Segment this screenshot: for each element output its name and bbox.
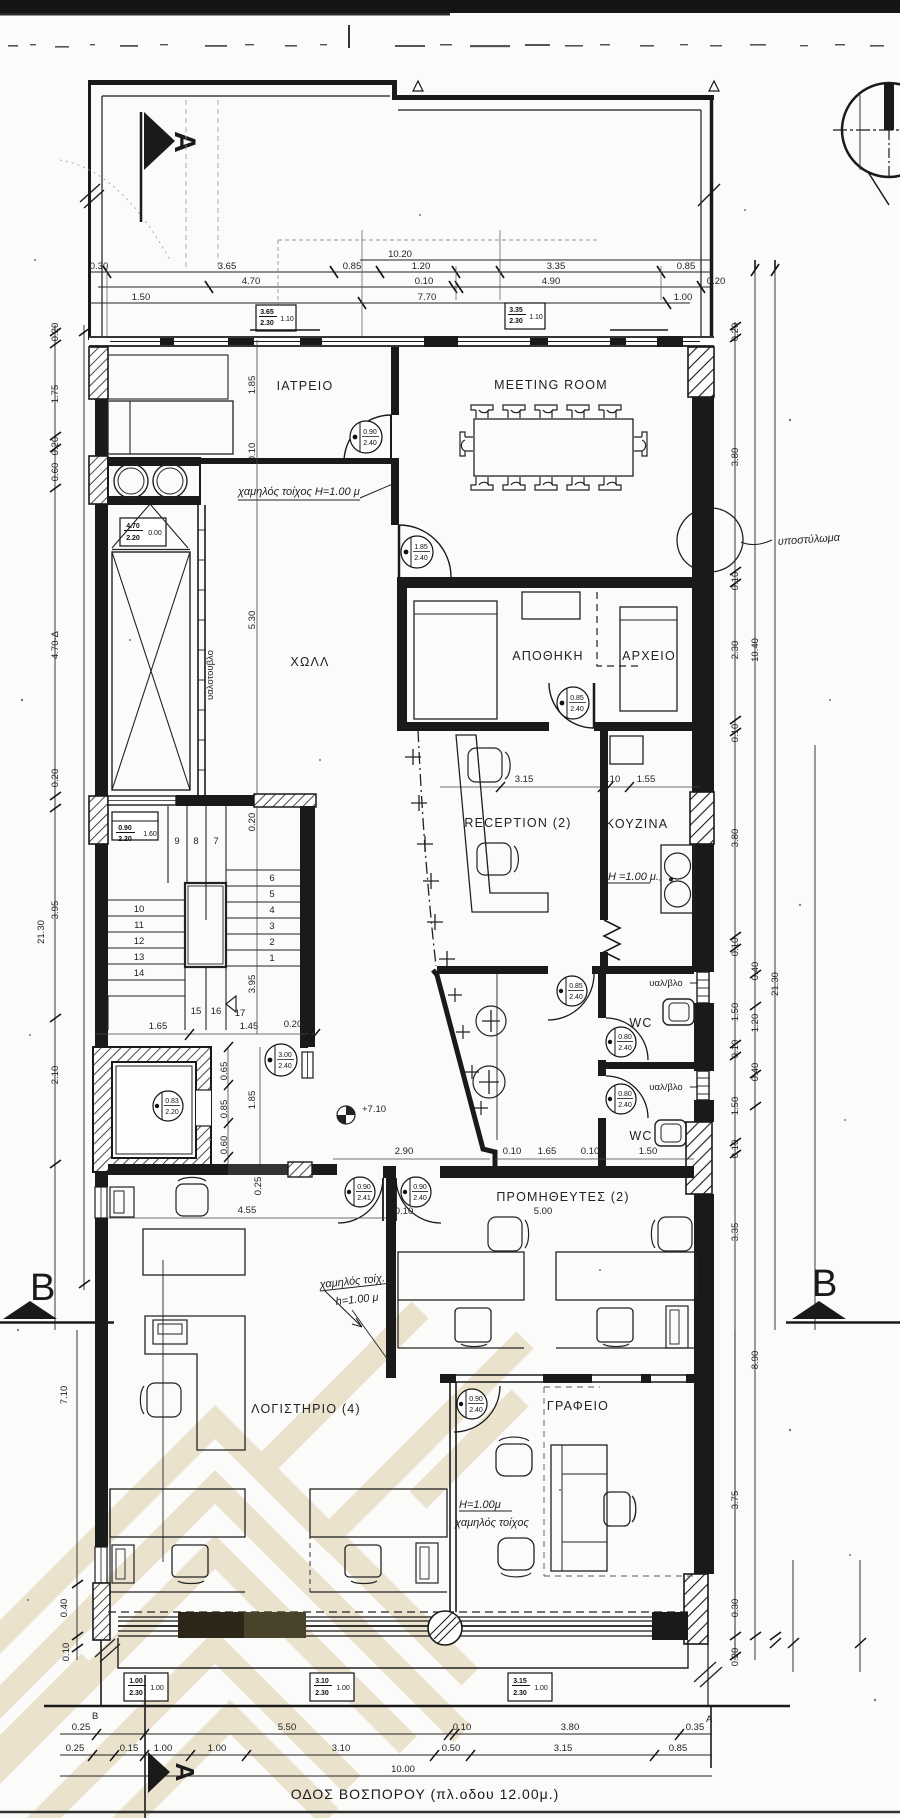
svg-text:ΚΟΥΖΙΝΑ: ΚΟΥΖΙΝΑ xyxy=(606,817,668,831)
svg-text:1.20: 1.20 xyxy=(412,261,431,272)
svg-text:4.90: 4.90 xyxy=(542,276,561,287)
svg-text:0.90: 0.90 xyxy=(413,1184,427,1191)
svg-text:1.65: 1.65 xyxy=(149,1021,168,1032)
svg-text:4.70-Δ: 4.70-Δ xyxy=(50,630,61,659)
svg-text:7.70: 7.70 xyxy=(418,292,437,303)
svg-text:B: B xyxy=(812,1263,837,1305)
svg-text:3.35: 3.35 xyxy=(547,261,566,272)
svg-text:ΑΡΧΕΙΟ: ΑΡΧΕΙΟ xyxy=(622,649,676,663)
svg-text:H=1.00μ: H=1.00μ xyxy=(459,1499,501,1511)
svg-text:1.50: 1.50 xyxy=(730,1003,741,1022)
svg-text:0.40: 0.40 xyxy=(59,1599,70,1618)
svg-text:3.10: 3.10 xyxy=(332,1743,351,1754)
svg-text:8.90: 8.90 xyxy=(750,1351,761,1370)
svg-text:1.00: 1.00 xyxy=(674,292,693,303)
svg-text:1.00: 1.00 xyxy=(534,1685,548,1692)
svg-text:0.10: 0.10 xyxy=(453,1722,472,1733)
svg-text:1.75: 1.75 xyxy=(50,385,61,404)
svg-text:0.20: 0.20 xyxy=(50,323,61,342)
svg-text:7: 7 xyxy=(213,836,218,847)
svg-text:1.85: 1.85 xyxy=(247,1091,258,1110)
svg-text:2.20: 2.20 xyxy=(118,836,132,843)
svg-text:2.20: 2.20 xyxy=(126,535,140,542)
svg-text:10.20: 10.20 xyxy=(388,249,412,260)
svg-text:2.40: 2.40 xyxy=(414,555,428,562)
svg-text:0.60: 0.60 xyxy=(50,463,61,482)
svg-text:1.10: 1.10 xyxy=(529,314,543,321)
svg-text:0.20: 0.20 xyxy=(50,437,61,456)
svg-text:2.40: 2.40 xyxy=(618,1045,632,1052)
svg-text:0.10: 0.10 xyxy=(581,1146,600,1157)
svg-text:0.10: 0.10 xyxy=(730,1040,741,1059)
svg-text:1.00: 1.00 xyxy=(154,1743,173,1754)
svg-text:16: 16 xyxy=(211,1006,222,1017)
svg-text:0.85: 0.85 xyxy=(677,261,696,272)
svg-text:0.85: 0.85 xyxy=(669,1743,688,1754)
svg-text:0.90: 0.90 xyxy=(469,1396,483,1403)
svg-text:0.30: 0.30 xyxy=(730,1599,741,1618)
svg-text:0.90: 0.90 xyxy=(357,1184,371,1191)
svg-text:0.15: 0.15 xyxy=(120,1743,139,1754)
svg-text:5.50: 5.50 xyxy=(278,1722,297,1733)
svg-text:3.35: 3.35 xyxy=(730,1223,741,1242)
svg-text:0.20: 0.20 xyxy=(284,1019,303,1030)
svg-text:5: 5 xyxy=(269,889,274,900)
svg-text:0.20: 0.20 xyxy=(730,323,741,342)
svg-text:0.85: 0.85 xyxy=(343,261,362,272)
svg-text:5.30: 5.30 xyxy=(247,611,258,630)
svg-text:2.40: 2.40 xyxy=(413,1195,427,1202)
svg-text:12: 12 xyxy=(134,936,145,947)
svg-text:A: A xyxy=(168,131,201,153)
svg-text:+7.10: +7.10 xyxy=(362,1104,386,1115)
svg-text:2.30: 2.30 xyxy=(315,1690,329,1697)
svg-text:2.40: 2.40 xyxy=(278,1063,292,1070)
svg-text:0.80: 0.80 xyxy=(618,1034,632,1041)
svg-text:21.30: 21.30 xyxy=(36,920,47,944)
svg-text:3.15: 3.15 xyxy=(513,1678,527,1685)
svg-text:0.10: 0.10 xyxy=(247,443,258,462)
svg-text:MEETING ROOM: MEETING ROOM xyxy=(494,378,608,392)
svg-text:0.20: 0.20 xyxy=(247,813,258,832)
svg-text:1.50: 1.50 xyxy=(730,1097,741,1116)
svg-text:υαλοτουβλο: υαλοτουβλο xyxy=(205,650,216,700)
svg-text:3.65: 3.65 xyxy=(260,309,274,316)
svg-text:3.95: 3.95 xyxy=(247,975,258,994)
svg-text:3.95: 3.95 xyxy=(50,901,61,920)
svg-text:2.40: 2.40 xyxy=(363,440,377,447)
svg-text:2.30: 2.30 xyxy=(509,318,523,325)
svg-text:ΙΑΤΡΕΙΟ: ΙΑΤΡΕΙΟ xyxy=(277,379,334,393)
svg-text:2.40: 2.40 xyxy=(569,994,583,1001)
svg-text:3: 3 xyxy=(269,921,274,932)
svg-text:1.55: 1.55 xyxy=(637,774,656,785)
svg-text:11: 11 xyxy=(134,920,144,931)
svg-text:3.10: 3.10 xyxy=(315,1678,329,1685)
svg-text:5.00: 5.00 xyxy=(534,1206,553,1217)
svg-text:2.10: 2.10 xyxy=(50,1066,61,1085)
svg-text:0.35: 0.35 xyxy=(686,1722,705,1733)
svg-text:0.80: 0.80 xyxy=(618,1091,632,1098)
svg-text:0.83: 0.83 xyxy=(165,1098,179,1105)
svg-text:21.30: 21.30 xyxy=(770,972,781,996)
svg-text:0.60: 0.60 xyxy=(219,1136,230,1155)
svg-text:0.00: 0.00 xyxy=(148,530,162,537)
svg-text:3.15: 3.15 xyxy=(515,774,534,785)
svg-text:ΛΟΓΙΣΤΗΡΙΟ (4): ΛΟΓΙΣΤΗΡΙΟ (4) xyxy=(251,1402,361,1416)
svg-text:1.10: 1.10 xyxy=(280,316,294,323)
svg-text:0.90: 0.90 xyxy=(363,429,377,436)
svg-text:6: 6 xyxy=(269,873,274,884)
svg-text:1.45: 1.45 xyxy=(240,1021,259,1032)
svg-text:0.20: 0.20 xyxy=(50,769,61,788)
svg-text:3.00: 3.00 xyxy=(278,1052,292,1059)
svg-text:0.25: 0.25 xyxy=(66,1743,85,1754)
svg-text:1.60: 1.60 xyxy=(143,831,157,838)
svg-text:A: A xyxy=(170,1763,200,1782)
svg-text:υαλ/βλο: υαλ/βλο xyxy=(649,1082,682,1093)
svg-text:0.25: 0.25 xyxy=(253,1177,264,1196)
svg-text:0.10: 0.10 xyxy=(730,938,741,957)
svg-text:ΓΡΑΦΕΙΟ: ΓΡΑΦΕΙΟ xyxy=(547,1399,609,1413)
svg-text:1: 1 xyxy=(269,953,274,964)
svg-text:0.65: 0.65 xyxy=(219,1062,230,1081)
svg-text:χαμηλός τοίχος: χαμηλός τοίχος xyxy=(454,1517,529,1529)
svg-text:1.00: 1.00 xyxy=(208,1743,227,1754)
svg-text:1.65: 1.65 xyxy=(538,1146,557,1157)
svg-text:0.20: 0.20 xyxy=(707,276,726,287)
svg-text:2.20: 2.20 xyxy=(165,1109,179,1116)
svg-text:Η =1.00 μ.: Η =1.00 μ. xyxy=(608,871,659,883)
svg-text:0.10: 0.10 xyxy=(61,1643,72,1662)
svg-text:2.30: 2.30 xyxy=(129,1690,143,1697)
svg-text:0.85: 0.85 xyxy=(219,1100,230,1119)
svg-text:0.50: 0.50 xyxy=(442,1743,461,1754)
svg-text:A: A xyxy=(706,1714,713,1725)
svg-text:WC: WC xyxy=(629,1129,652,1143)
svg-text:4.70: 4.70 xyxy=(242,276,261,287)
svg-text:3.65: 3.65 xyxy=(218,261,237,272)
svg-text:ΠΡΟΜΗΘΕΥΤΕΣ (2): ΠΡΟΜΗΘΕΥΤΕΣ (2) xyxy=(496,1190,629,1204)
svg-text:0.10: 0.10 xyxy=(730,1140,741,1159)
svg-text:0.10: 0.10 xyxy=(415,276,434,287)
svg-text:4: 4 xyxy=(269,905,274,916)
svg-text:13: 13 xyxy=(134,952,145,963)
svg-text:1.00: 1.00 xyxy=(129,1678,143,1685)
svg-text:0.40: 0.40 xyxy=(750,1063,761,1082)
svg-text:9: 9 xyxy=(174,836,179,847)
svg-text:2.30: 2.30 xyxy=(260,320,274,327)
svg-text:3.80: 3.80 xyxy=(561,1722,580,1733)
svg-text:υαλ/βλο: υαλ/βλο xyxy=(649,978,682,989)
svg-text:4.55: 4.55 xyxy=(238,1205,257,1216)
svg-text:0.10: 0.10 xyxy=(730,724,741,743)
svg-text:17: 17 xyxy=(235,1008,246,1019)
svg-text:χαμηλός τοίχος Η=1.00 μ: χαμηλός τοίχος Η=1.00 μ xyxy=(237,486,360,498)
svg-text:10.00: 10.00 xyxy=(391,1764,415,1775)
svg-text:3.80: 3.80 xyxy=(730,448,741,467)
svg-text:14: 14 xyxy=(134,968,145,979)
svg-text:1.20: 1.20 xyxy=(750,1014,761,1033)
svg-text:0.25: 0.25 xyxy=(72,1722,91,1733)
svg-text:0.85: 0.85 xyxy=(570,695,584,702)
svg-text:2.40: 2.40 xyxy=(570,706,584,713)
svg-text:1.00: 1.00 xyxy=(336,1685,350,1692)
svg-text:0.20: 0.20 xyxy=(730,1648,741,1667)
svg-text:10.40: 10.40 xyxy=(750,638,761,662)
svg-text:1.50: 1.50 xyxy=(132,292,151,303)
svg-text:3.80: 3.80 xyxy=(730,829,741,848)
svg-text:1.85: 1.85 xyxy=(247,376,258,395)
svg-text:1.50: 1.50 xyxy=(639,1146,658,1157)
svg-text:2.40: 2.40 xyxy=(469,1407,483,1414)
svg-text:1.00: 1.00 xyxy=(150,1685,164,1692)
svg-text:10: 10 xyxy=(134,904,145,915)
svg-text:2.30: 2.30 xyxy=(513,1690,527,1697)
svg-text:B: B xyxy=(30,1267,55,1309)
svg-text:8: 8 xyxy=(193,836,198,847)
svg-text:0.10: 0.10 xyxy=(395,1206,414,1217)
svg-text:0.10: 0.10 xyxy=(730,572,741,591)
svg-text:ΑΠΟΘΗΚΗ: ΑΠΟΘΗΚΗ xyxy=(512,649,584,663)
svg-text:2.41: 2.41 xyxy=(357,1195,371,1202)
svg-text:2: 2 xyxy=(269,937,274,948)
svg-text:3.15: 3.15 xyxy=(554,1743,573,1754)
svg-text:B: B xyxy=(92,1711,98,1722)
svg-text:15: 15 xyxy=(191,1006,202,1017)
svg-text:2.90: 2.90 xyxy=(395,1146,414,1157)
svg-text:3.35: 3.35 xyxy=(509,307,523,314)
svg-text:2.30: 2.30 xyxy=(730,641,741,660)
svg-text:0.40: 0.40 xyxy=(750,962,761,981)
svg-text:ΟΔΟΣ ΒΟΣΠΟΡΟΥ (πλ.οδου 12.0: ΟΔΟΣ ΒΟΣΠΟΡΟΥ (πλ.οδου 12.00μ.) xyxy=(291,1786,560,1802)
svg-text:3.75: 3.75 xyxy=(730,1491,741,1510)
svg-text:0.85: 0.85 xyxy=(569,983,583,990)
svg-text:ΧΩΛΛ: ΧΩΛΛ xyxy=(290,655,329,669)
svg-text:RECEPTION (2): RECEPTION (2) xyxy=(464,816,571,830)
svg-text:7.10: 7.10 xyxy=(59,1386,70,1405)
svg-text:0.90: 0.90 xyxy=(118,825,132,832)
svg-text:0.10: 0.10 xyxy=(503,1146,522,1157)
svg-text:1.85: 1.85 xyxy=(414,544,428,551)
svg-text:2.40: 2.40 xyxy=(618,1102,632,1109)
